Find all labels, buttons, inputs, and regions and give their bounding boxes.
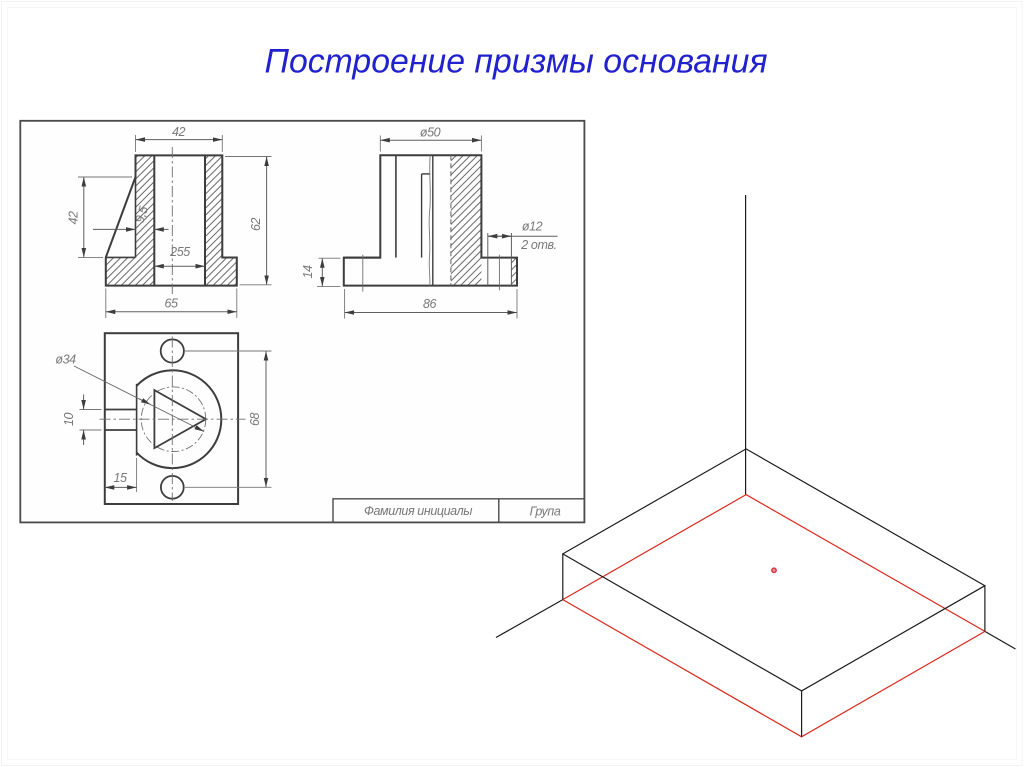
- svg-text:Група: Група: [530, 505, 561, 519]
- svg-text:255: 255: [169, 245, 190, 259]
- svg-text:2 отв.: 2 отв.: [520, 238, 556, 252]
- svg-text:Фамилия инициалы: Фамилия инициалы: [364, 504, 472, 518]
- svg-text:62: 62: [249, 218, 263, 232]
- svg-text:65: 65: [164, 297, 178, 311]
- svg-text:42: 42: [67, 211, 81, 225]
- svg-text:ø34: ø34: [55, 353, 76, 367]
- svg-text:42: 42: [172, 125, 186, 139]
- svg-text:14: 14: [301, 265, 315, 279]
- svg-text:15: 15: [113, 471, 127, 485]
- svg-text:ø50: ø50: [420, 126, 441, 140]
- svg-text:10: 10: [62, 413, 76, 427]
- svg-text:ø12: ø12: [522, 220, 543, 234]
- svg-text:68: 68: [248, 413, 262, 427]
- svg-text:86: 86: [423, 297, 437, 311]
- svg-text:Построение призмы основания: Построение призмы основания: [265, 43, 768, 81]
